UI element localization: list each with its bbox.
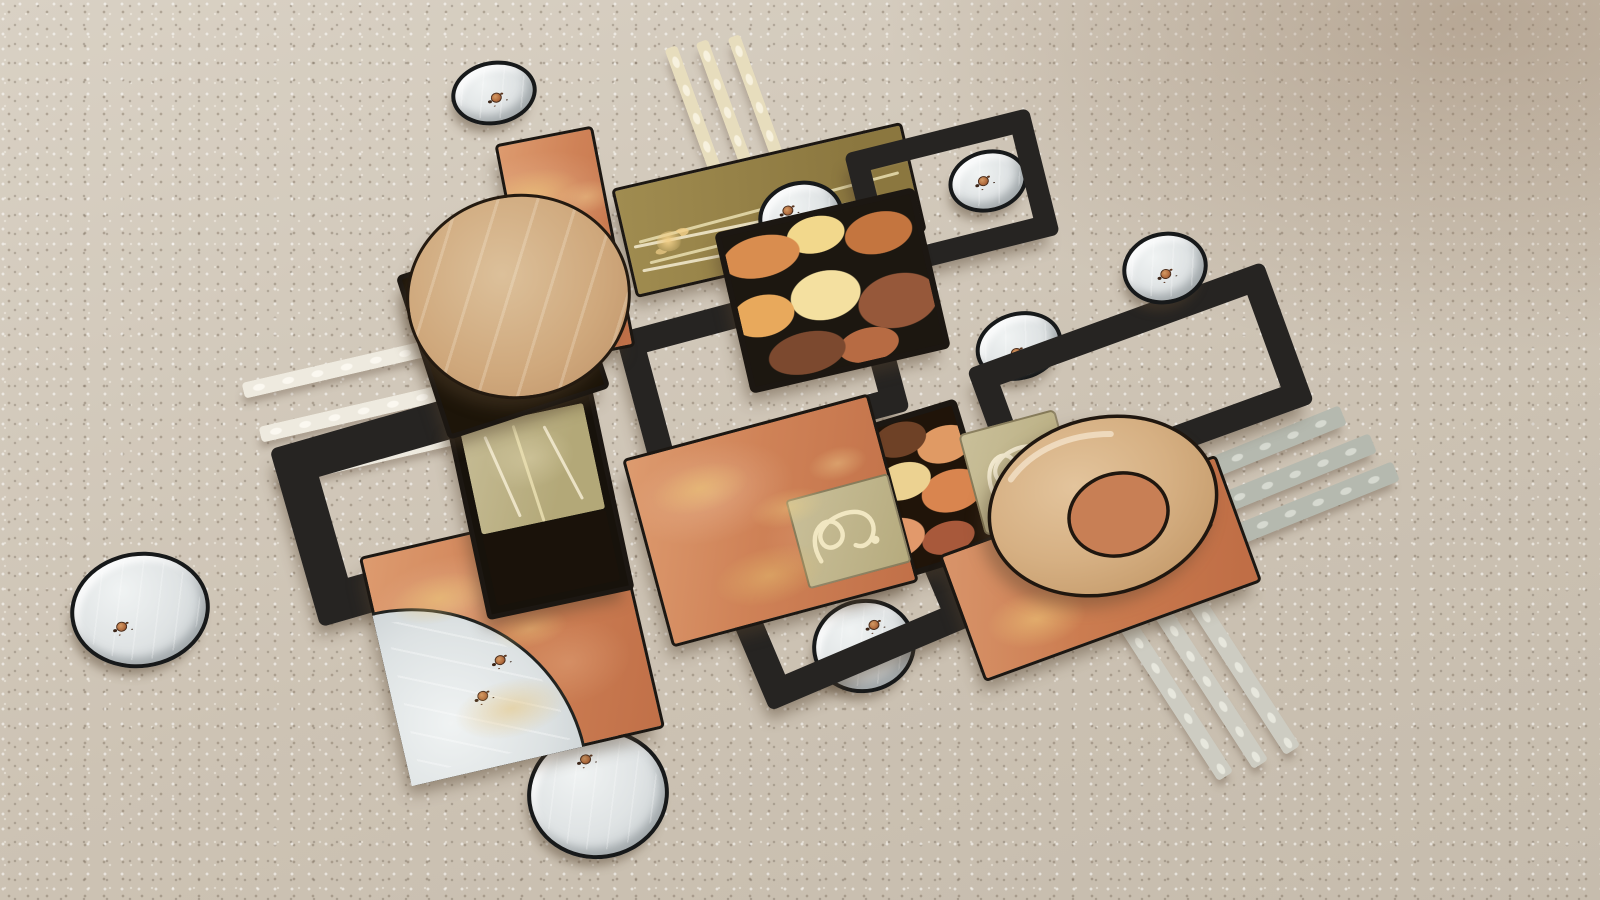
photo-stage <box>0 0 1600 900</box>
tan-ring <box>968 398 1258 623</box>
copper-dot <box>490 92 503 104</box>
slat-bar <box>242 341 426 398</box>
copper-dot <box>493 654 506 666</box>
copper-dot <box>1159 268 1172 280</box>
paint-squiggle <box>543 425 585 500</box>
cream-loop-doodle <box>788 476 909 587</box>
copper-dot <box>476 690 489 702</box>
silver-disc <box>63 543 218 677</box>
sand-inset-doodle <box>786 473 912 589</box>
silver-disc <box>446 54 542 132</box>
copper-dot <box>115 621 127 632</box>
ring-group <box>970 398 1236 619</box>
paint-squiggle <box>483 436 522 518</box>
copper-dot <box>579 753 591 764</box>
